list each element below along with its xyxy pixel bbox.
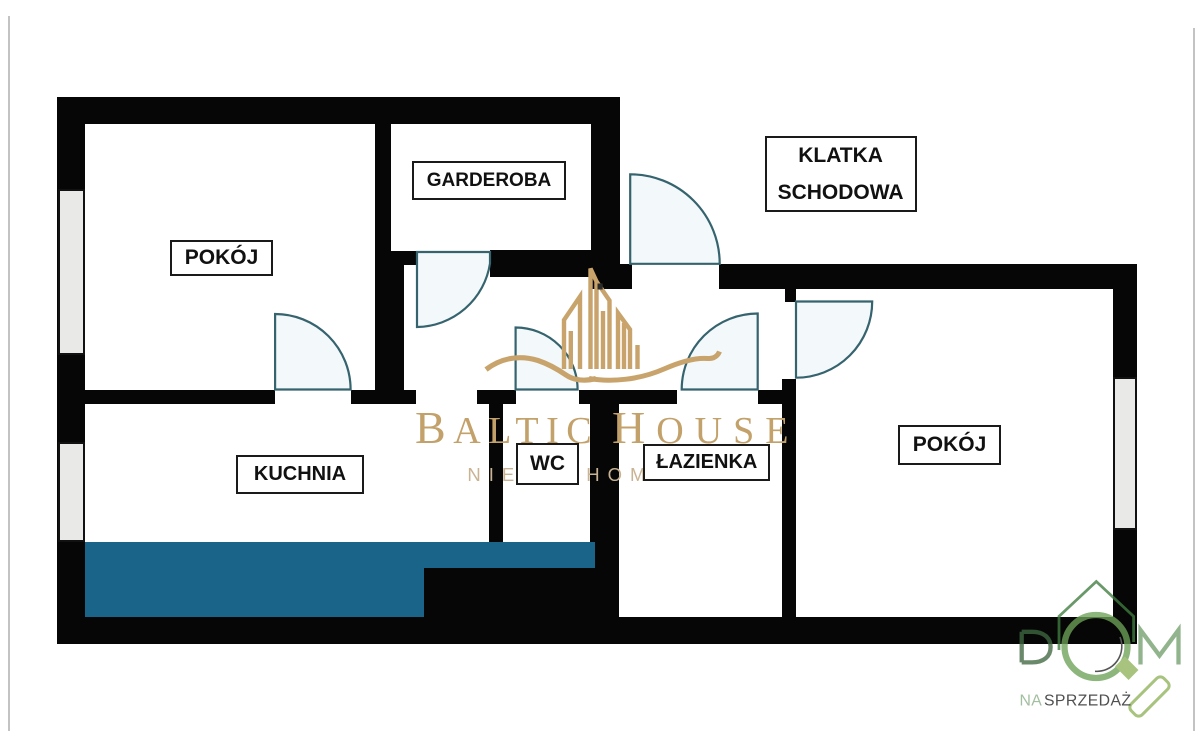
svg-text:NA: NA	[1020, 693, 1043, 710]
svg-text:SPRZEDAŻ: SPRZEDAŻ	[1044, 691, 1131, 710]
